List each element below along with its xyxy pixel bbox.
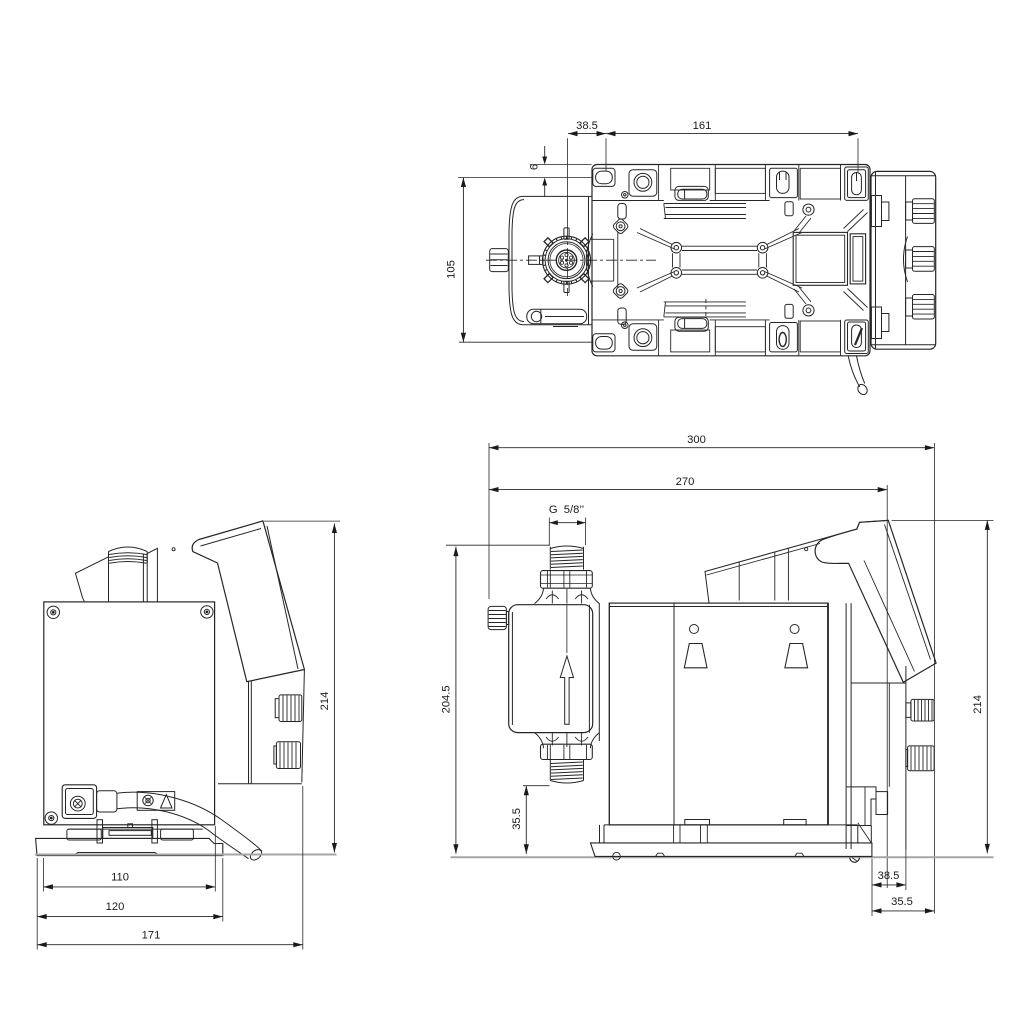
- svg-text:270: 270: [676, 476, 695, 488]
- svg-text:38.5: 38.5: [878, 870, 900, 882]
- svg-text:G 5/8’’: G 5/8’’: [549, 504, 584, 516]
- svg-text:214: 214: [319, 692, 331, 711]
- svg-text:35.5: 35.5: [511, 808, 523, 830]
- svg-text:171: 171: [142, 930, 161, 942]
- svg-text:110: 110: [111, 872, 129, 884]
- svg-text:38.5: 38.5: [576, 120, 598, 132]
- svg-text:35.5: 35.5: [891, 896, 913, 908]
- svg-text:214: 214: [972, 695, 984, 714]
- svg-text:300: 300: [687, 434, 706, 446]
- svg-text:105: 105: [446, 260, 458, 279]
- svg-text:204.5: 204.5: [441, 685, 453, 713]
- svg-text:161: 161: [693, 120, 712, 132]
- svg-text:120: 120: [106, 901, 125, 913]
